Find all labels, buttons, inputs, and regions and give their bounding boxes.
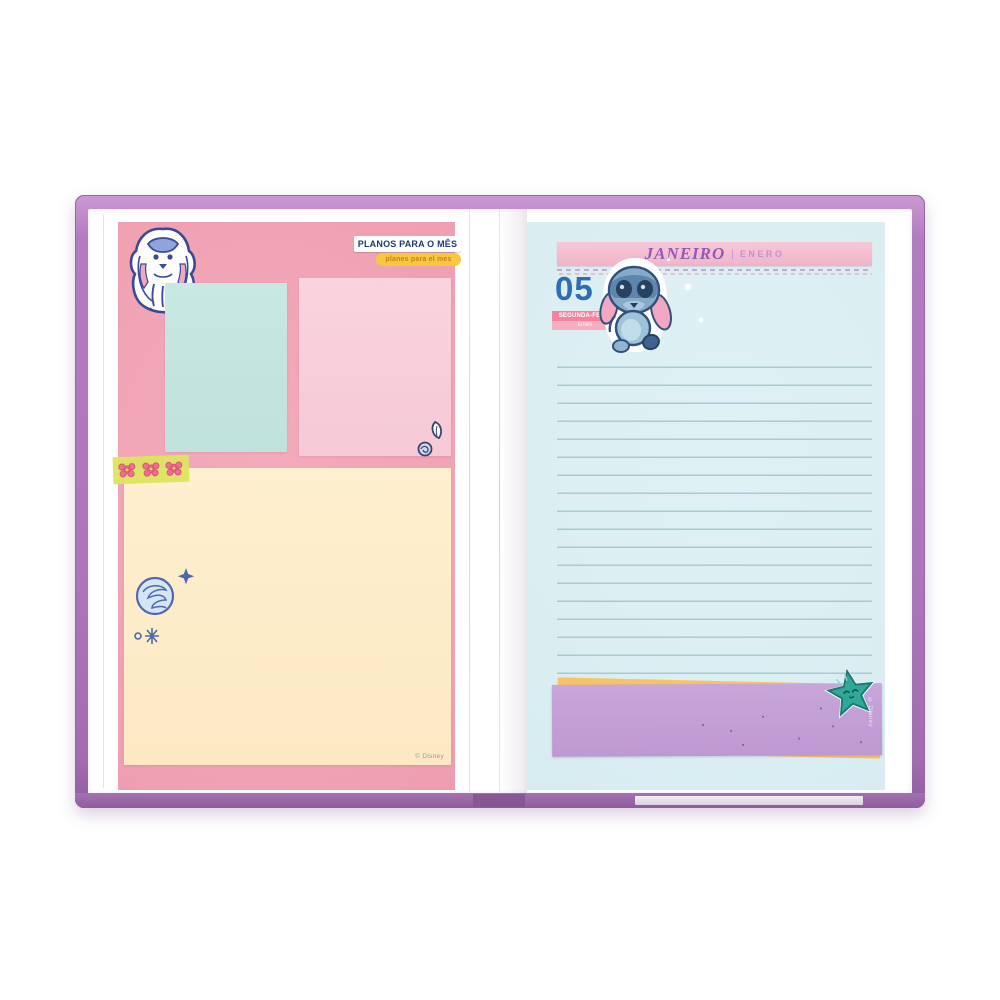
month-divider: | <box>731 249 734 260</box>
star-face-sticker <box>817 659 884 726</box>
mint-note-panel <box>165 283 287 452</box>
plans-for-month-label: PLANOS PARA O MÊS <box>354 236 461 252</box>
right-page: JANEIRO | ENERO 05 SEGUNDA-FEIRA lunes <box>527 222 885 790</box>
banner-speckles <box>702 724 704 726</box>
cover-bottom-edge <box>75 793 925 808</box>
sparkle-highlight <box>699 318 703 322</box>
flower-washi-tape <box>111 453 190 487</box>
scribble-ball-doodle <box>128 560 200 652</box>
open-pages: PLANOS PARA O MÊS planes para el mes © D… <box>88 209 912 794</box>
page-stack-edge <box>103 215 104 788</box>
day-number: 05 <box>555 272 594 305</box>
page-fold-line <box>469 209 470 794</box>
month-title-spanish: ENERO <box>740 249 785 259</box>
sparkle-highlight <box>667 258 670 261</box>
planner-cover: PLANOS PARA O MÊS planes para el mes © D… <box>75 195 925 808</box>
gutter-shadow <box>501 209 527 794</box>
left-page: PLANOS PARA O MÊS planes para el mes © D… <box>118 222 455 790</box>
stitch-sticker <box>597 256 673 356</box>
ruled-lines <box>557 350 872 678</box>
plans-for-month-sublabel: planes para el mes <box>376 253 461 266</box>
pink-note-panel <box>299 278 451 456</box>
copyright-left: © Disney <box>415 753 444 760</box>
leaf-doodle <box>415 418 447 460</box>
spine-fold-line <box>499 209 500 794</box>
sparkle-highlight <box>685 284 691 290</box>
notes-banner: © Disney <box>552 678 886 764</box>
planner-product-photo: PLANOS PARA O MÊS planes para el mes © D… <box>0 0 1000 1000</box>
sparkle-doodle <box>178 568 194 584</box>
page-block-fore-edge <box>635 796 863 805</box>
spine-shadow-block <box>473 794 525 807</box>
